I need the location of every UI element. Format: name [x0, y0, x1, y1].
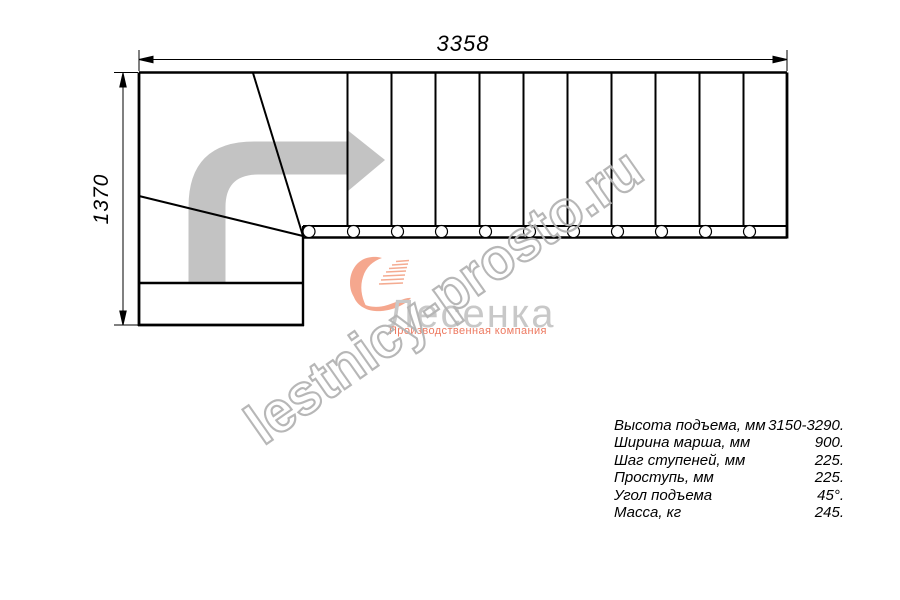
spec-label: Проступь, мм	[614, 469, 714, 486]
spec-label: Шаг ступеней, мм	[614, 452, 745, 469]
spec-value: 225.	[815, 452, 844, 469]
spec-label: Ширина марша, мм	[614, 434, 750, 451]
spec-row: Шаг ступеней, мм 225.	[614, 452, 844, 469]
baluster-circles	[303, 226, 756, 238]
spec-row: Проступь, мм 225.	[614, 469, 844, 486]
step-lines	[348, 73, 744, 226]
specs-table: Высота подъема, мм 3150-3290. Ширина мар…	[614, 417, 844, 521]
spec-row: Ширина марша, мм 900.	[614, 434, 844, 451]
dimension-width-label: 3358	[437, 31, 490, 57]
spec-row: Высота подъема, мм 3150-3290.	[614, 417, 844, 434]
spec-value: 245.	[815, 504, 844, 521]
spec-label: Высота подъема, мм	[614, 417, 766, 434]
logo-tagline: Производственная компания	[389, 325, 547, 337]
spec-value: 45°.	[817, 487, 844, 504]
spec-label: Масса, кг	[614, 504, 681, 521]
spec-row: Угол подъема 45°.	[614, 487, 844, 504]
dimension-height-line	[114, 73, 138, 326]
spec-value: 3150-3290.	[768, 417, 844, 434]
spec-label: Угол подъема	[614, 487, 712, 504]
page: { "drawing": { "width_label": "3358", "h…	[0, 0, 900, 600]
stringer-strip	[303, 226, 787, 238]
staircase-outline	[138, 73, 787, 327]
dimension-height-label: 1370	[90, 174, 114, 225]
spec-row: Масса, кг 245.	[614, 504, 844, 521]
spec-value: 900.	[815, 434, 844, 451]
spec-value: 225.	[815, 469, 844, 486]
direction-arrow-icon	[189, 131, 386, 284]
